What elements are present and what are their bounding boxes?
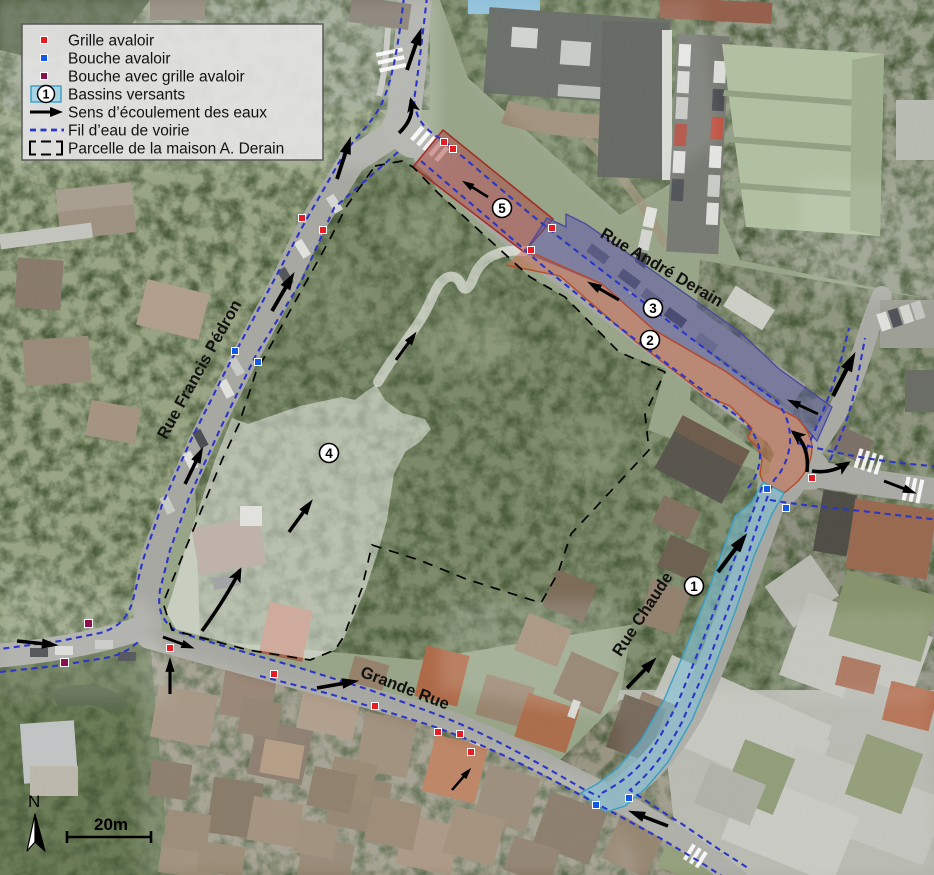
svg-text:N: N xyxy=(28,792,40,811)
svg-text:20m: 20m xyxy=(94,815,128,834)
svg-text:3: 3 xyxy=(649,301,657,316)
svg-text:Grille avaloir: Grille avaloir xyxy=(68,33,154,50)
svg-text:Bouche avec grille avaloir: Bouche avec grille avaloir xyxy=(68,69,245,86)
svg-text:Bouche avaloir: Bouche avaloir xyxy=(68,51,171,68)
svg-text:Parcelle de la maison A. Derai: Parcelle de la maison A. Derain xyxy=(68,141,284,158)
svg-text:1: 1 xyxy=(43,88,50,102)
svg-text:Fil d’eau de voirie: Fil d’eau de voirie xyxy=(68,123,189,140)
svg-text:Bassins versants: Bassins versants xyxy=(68,87,185,104)
svg-text:Sens d’écoulement des eaux: Sens d’écoulement des eaux xyxy=(68,105,267,122)
svg-text:1: 1 xyxy=(690,579,698,594)
svg-text:2: 2 xyxy=(646,333,654,348)
svg-text:4: 4 xyxy=(325,446,333,461)
svg-text:5: 5 xyxy=(498,201,506,216)
